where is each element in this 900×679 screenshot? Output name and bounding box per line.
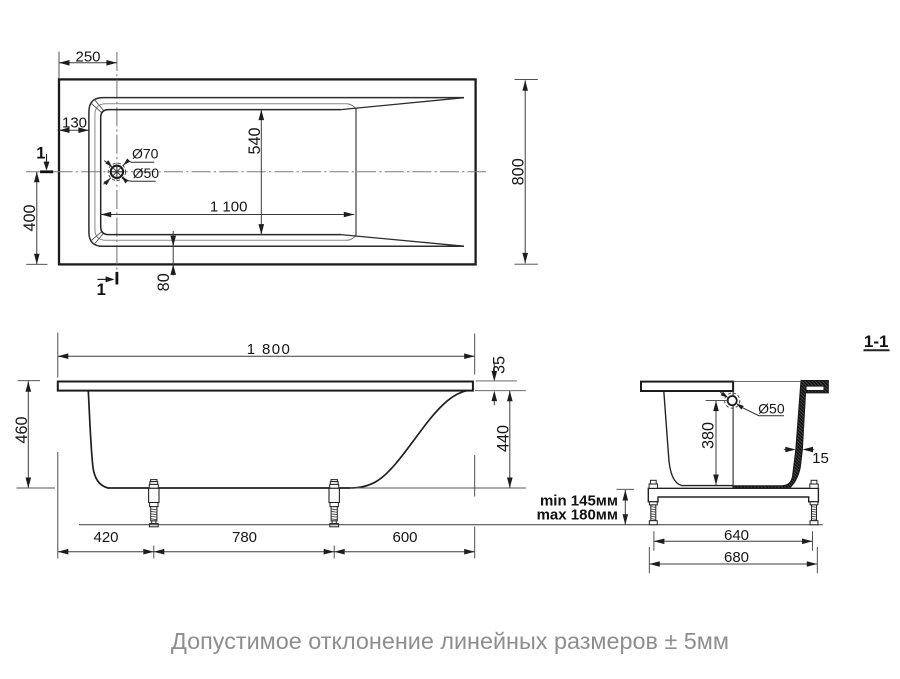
svg-text:780: 780 <box>232 529 257 546</box>
svg-text:600: 600 <box>392 529 417 546</box>
svg-text:130: 130 <box>62 115 87 132</box>
svg-text:Ø70: Ø70 <box>132 146 159 162</box>
svg-text:540: 540 <box>246 127 264 154</box>
svg-text:80: 80 <box>155 273 173 291</box>
svg-text:1: 1 <box>97 281 106 299</box>
svg-text:800: 800 <box>510 158 528 185</box>
svg-text:680: 680 <box>724 549 749 566</box>
svg-text:640: 640 <box>724 527 749 544</box>
svg-text:460: 460 <box>13 416 31 443</box>
svg-text:380: 380 <box>700 422 718 449</box>
svg-text:Ø50: Ø50 <box>133 165 160 181</box>
svg-text:420: 420 <box>93 529 118 546</box>
svg-text:35: 35 <box>490 356 508 374</box>
svg-text:1 800: 1 800 <box>247 341 292 358</box>
svg-text:Ø50: Ø50 <box>758 401 785 417</box>
svg-text:1-1: 1-1 <box>864 332 889 351</box>
svg-text:1: 1 <box>36 144 45 162</box>
svg-text:400: 400 <box>21 204 39 231</box>
svg-text:Допустимое отклонение линейных: Допустимое отклонение линейных размеров … <box>171 628 729 654</box>
svg-text:250: 250 <box>75 48 100 65</box>
svg-text:1 100: 1 100 <box>210 198 248 215</box>
svg-text:max 180мм: max 180мм <box>537 506 618 523</box>
svg-text:15: 15 <box>812 450 829 467</box>
svg-text:440: 440 <box>494 425 512 452</box>
